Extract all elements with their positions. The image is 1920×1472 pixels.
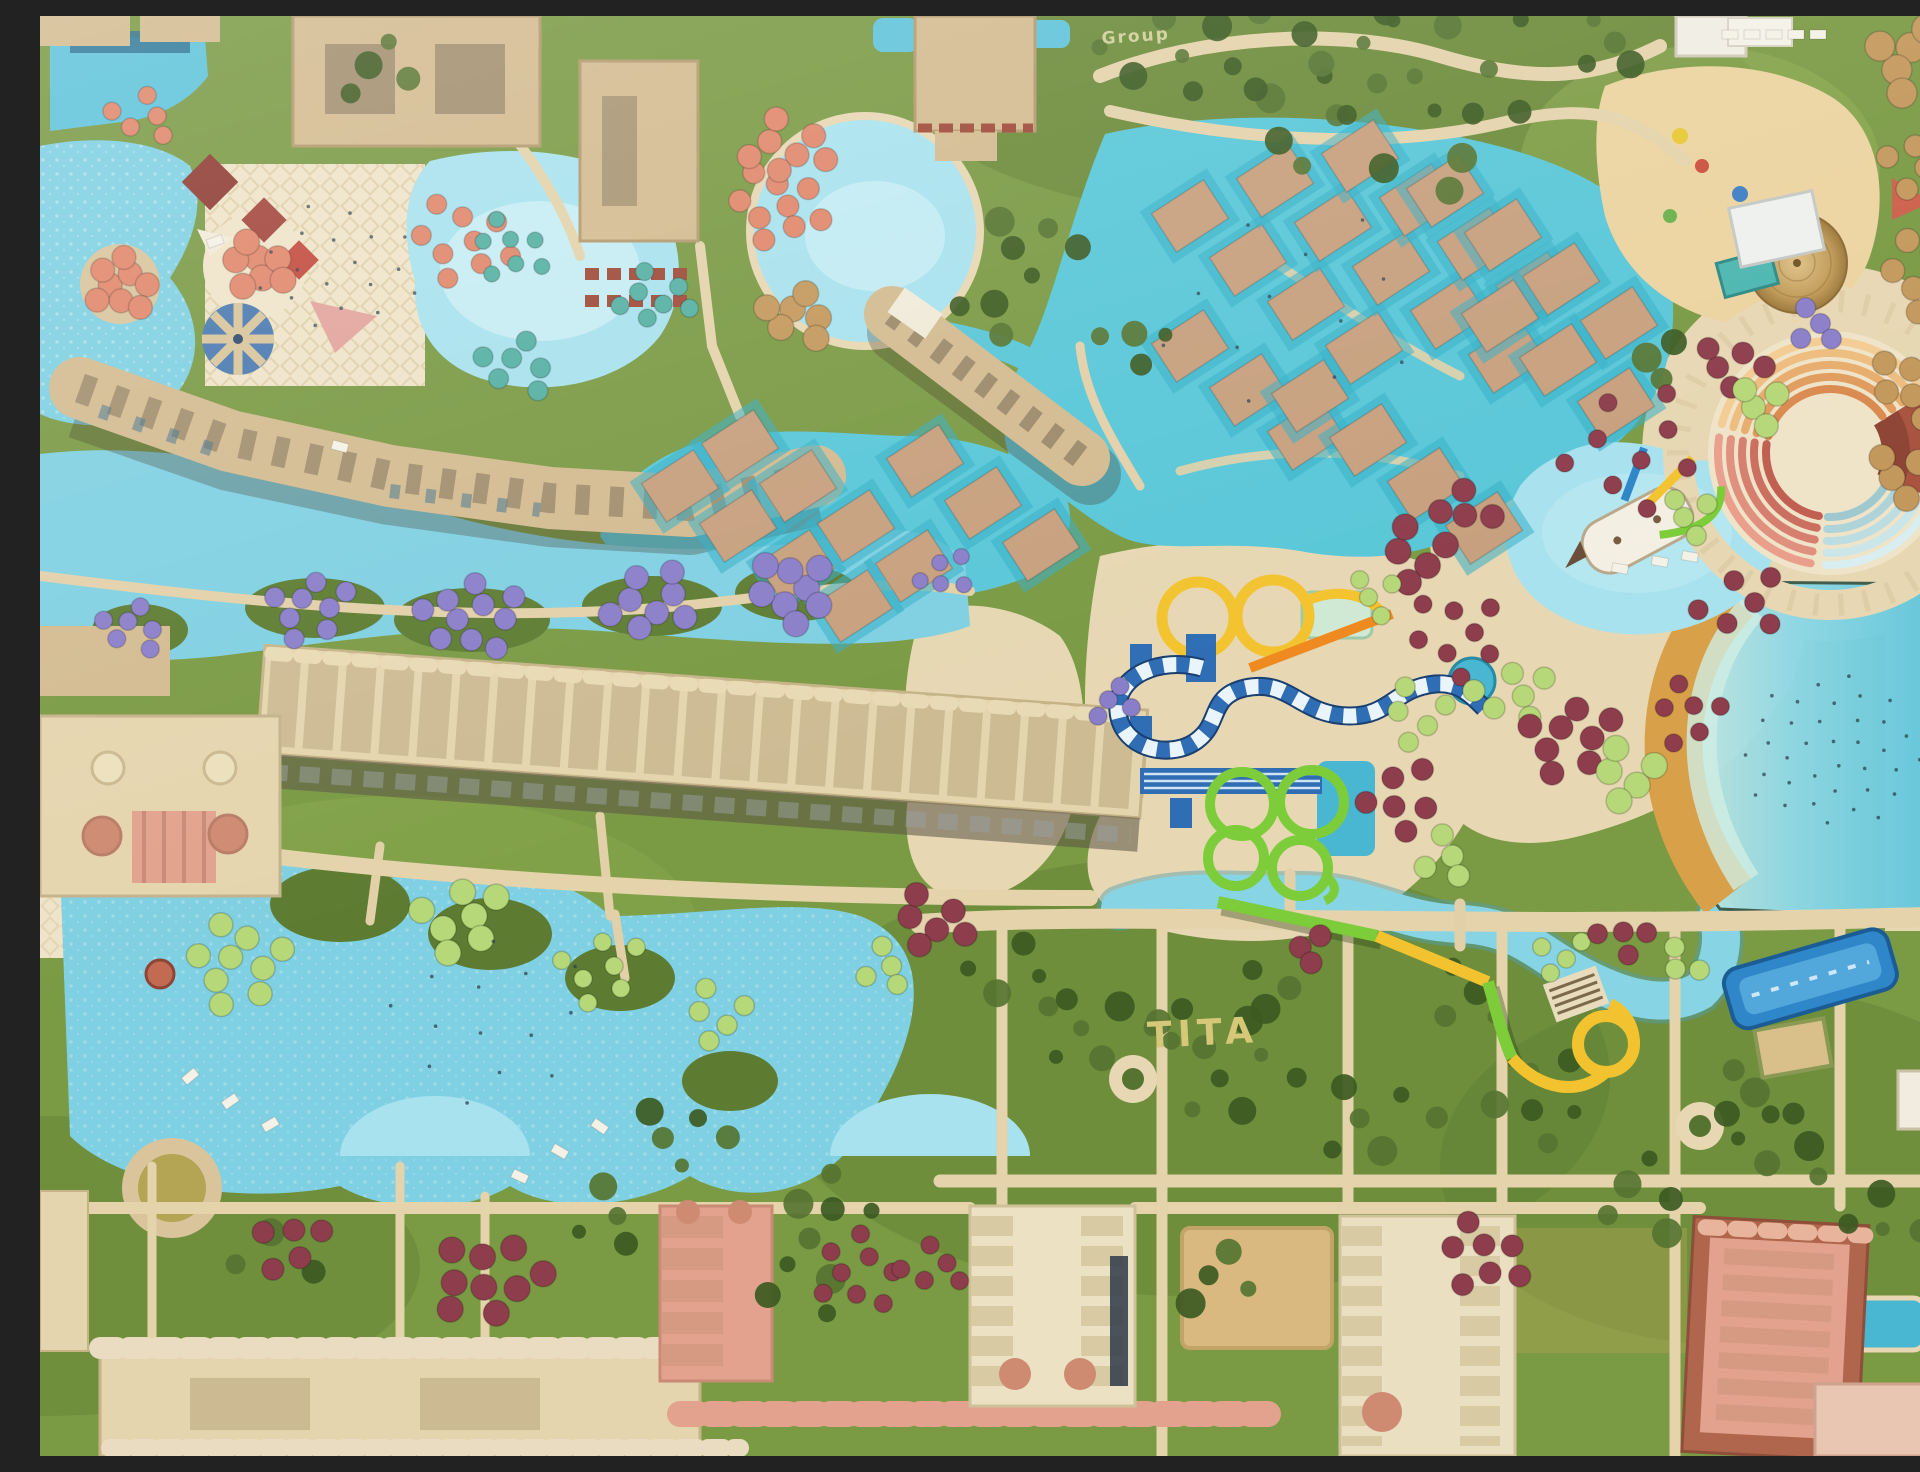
scene-canvas: TITA Group: [40, 16, 1920, 1456]
aerial-resort-photo: TITA Group: [40, 16, 1920, 1456]
sunlight-wash: [40, 16, 1920, 1456]
